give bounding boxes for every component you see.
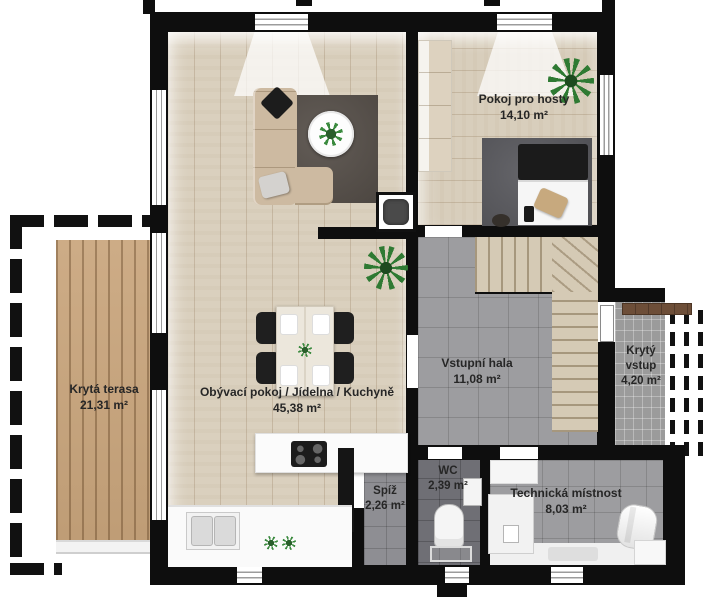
room-area-tech: 8,03 m²: [510, 502, 621, 518]
counter-plant-icon-2: [282, 536, 296, 550]
coffee-table-plant-icon: [319, 122, 343, 146]
room-label-pantry: Spíž 2,26 m²: [365, 484, 405, 514]
wall-tech-right: [663, 450, 685, 585]
tech-mat: [548, 547, 598, 561]
guest-wardrobe: [418, 40, 452, 172]
guest-door-opening: [425, 226, 462, 237]
room-name-wc: WC: [428, 464, 468, 479]
room-label-hall: Vstupní hala 11,08 m²: [441, 356, 512, 387]
terrace-edge-top: [10, 215, 150, 227]
room-area-guest: 14,10 m²: [479, 108, 570, 124]
window-bottom-wc: [445, 567, 469, 583]
window-right-guest: [600, 75, 613, 155]
room-name-pantry: Spíž: [365, 484, 405, 499]
place-setting-2: [280, 365, 298, 386]
place-setting-3: [312, 314, 330, 335]
washer-control: [503, 525, 519, 543]
bed-headboard: [518, 144, 588, 180]
window-bottom-tech: [551, 567, 583, 583]
guest-slippers: [492, 214, 510, 227]
tick-top-3: [484, 0, 500, 6]
window-bottom-kitchen: [237, 567, 262, 583]
room-label-tech: Technická místnost 8,03 m²: [510, 486, 621, 517]
bed-tablet: [524, 206, 534, 222]
kitchen-island: [255, 433, 408, 473]
terrace-door-lower: [152, 390, 166, 520]
place-setting-1: [280, 314, 298, 335]
living-hall-opening: [407, 335, 418, 388]
living-plant-icon: [364, 246, 408, 290]
floor-plan: Obývací pokoj / Jídelna / Kuchyně 45,38 …: [0, 0, 722, 600]
room-name-entry: Krytý vstup: [613, 344, 669, 374]
room-name-guest: Pokoj pro hosty: [479, 92, 570, 108]
front-door-leaf: [600, 305, 614, 342]
wc-door-opening: [428, 447, 462, 459]
room-area-wc: 2,39 m²: [428, 479, 468, 494]
tick-bottom: [437, 585, 467, 597]
room-label-living: Obývací pokoj / Jídelna / Kuchyně 45,38 …: [200, 385, 394, 416]
tick-top-1: [143, 0, 155, 14]
entry-bench-icon: [622, 303, 692, 315]
tech-door-opening: [500, 447, 538, 459]
room-area-entry: 4,20 m²: [613, 374, 669, 389]
fireplace-core: [383, 199, 409, 225]
room-area-pantry: 2,26 m²: [365, 499, 405, 514]
room-name-terrace: Krytá terasa: [69, 382, 138, 398]
tick-top-2: [296, 0, 312, 6]
place-setting-4: [312, 365, 330, 386]
terrace-door-upper: [152, 233, 166, 333]
sofa-chaise: [295, 167, 333, 205]
room-label-entry: Krytý vstup 4,20 m²: [613, 344, 669, 389]
wall-entry-top: [612, 288, 665, 302]
wall-living-hall: [406, 32, 418, 565]
wall-bottom: [150, 565, 685, 585]
tick-top-4: [602, 0, 615, 14]
table-plant-icon: [298, 343, 312, 357]
room-label-guest: Pokoj pro hosty 14,10 m²: [479, 92, 570, 123]
room-area-hall: 11,08 m²: [441, 372, 512, 388]
room-area-living: 45,38 m²: [200, 401, 394, 417]
entry-column-line-3: [698, 310, 703, 456]
entry-column-line-2: [684, 310, 689, 456]
cooktop-icon: [291, 441, 327, 467]
terrace-edge-left: [10, 215, 22, 575]
kitchen-sink: [186, 512, 240, 550]
dining-table: [276, 306, 334, 396]
tech-box-icon: [634, 540, 666, 565]
entry-column-line-1: [670, 310, 675, 456]
tech-counter: [490, 460, 538, 484]
room-name-living: Obývací pokoj / Jídelna / Kuchyně: [200, 385, 394, 401]
boiler-ring: [624, 507, 636, 543]
sink-basin-right: [214, 516, 236, 546]
wall-right-upper: [597, 12, 615, 302]
room-name-tech: Technická místnost: [510, 486, 621, 502]
counter-plant-icon-1: [264, 536, 278, 550]
toilet-icon: [434, 504, 464, 548]
terrace-step-lower: [56, 552, 150, 565]
window-top-living: [255, 14, 308, 30]
stairs-lower-flight: [552, 292, 598, 432]
sink-basin-left: [191, 516, 213, 546]
window-top-guest: [497, 14, 552, 30]
stairs-upper-flight: [475, 237, 552, 292]
terrace-edge-bottom: [10, 563, 62, 575]
room-name-hall: Vstupní hala: [441, 356, 512, 372]
wc-floor-drain: [430, 546, 472, 562]
window-left-living: [152, 90, 166, 205]
room-label-terrace: Krytá terasa 21,31 m²: [69, 382, 138, 413]
room-label-wc: WC 2,39 m²: [428, 464, 468, 494]
room-area-terrace: 21,31 m²: [69, 398, 138, 414]
stairs-winder-corner: [552, 237, 598, 292]
